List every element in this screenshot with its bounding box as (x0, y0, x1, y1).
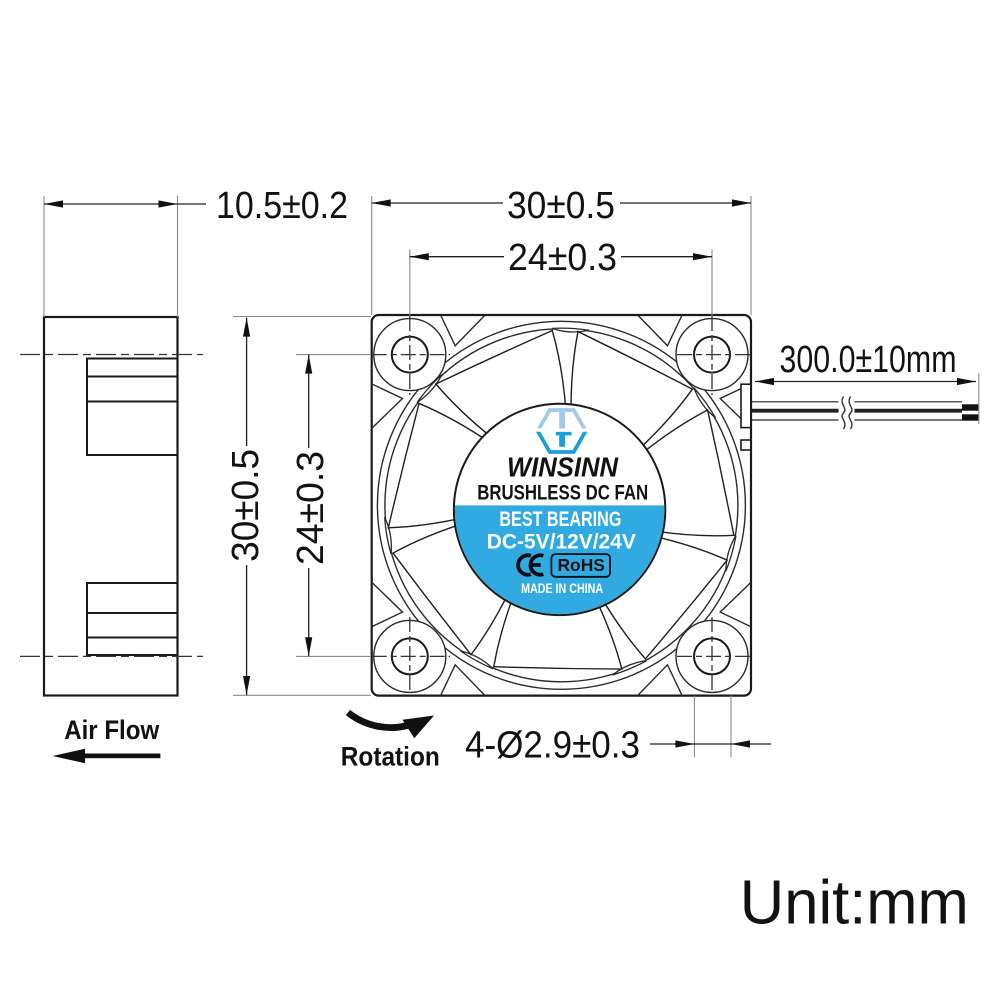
svg-text:10.5±0.2: 10.5±0.2 (216, 185, 348, 227)
svg-text:RoHS: RoHS (557, 555, 605, 575)
svg-text:Rotation: Rotation (341, 742, 440, 772)
svg-text:WINSINN: WINSINN (507, 452, 619, 483)
svg-text:DC-5V/12V/24V: DC-5V/12V/24V (487, 530, 637, 554)
svg-text:24±0.3: 24±0.3 (508, 237, 617, 279)
svg-text:30±0.5: 30±0.5 (507, 185, 615, 227)
svg-text:300.0±10mm: 300.0±10mm (780, 339, 957, 381)
svg-text:Air Flow: Air Flow (64, 715, 160, 745)
svg-text:BEST BEARING: BEST BEARING (499, 508, 621, 531)
svg-text:MADE IN CHINA: MADE IN CHINA (521, 580, 603, 596)
svg-text:4-Ø2.9±0.3: 4-Ø2.9±0.3 (465, 725, 640, 767)
svg-text:24±0.3: 24±0.3 (290, 451, 332, 565)
svg-text:Unit:mm: Unit:mm (740, 869, 969, 938)
svg-text:BRUSHLESS DC FAN: BRUSHLESS DC FAN (477, 482, 648, 505)
svg-text:30±0.5: 30±0.5 (225, 449, 267, 562)
